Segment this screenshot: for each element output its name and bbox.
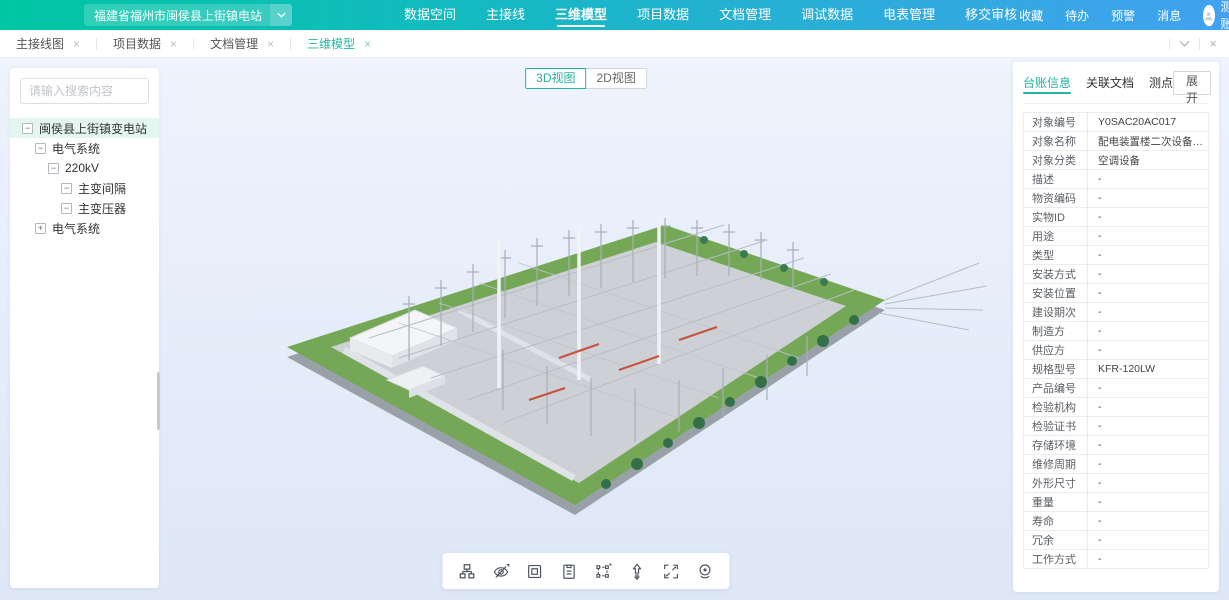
tab-label: 项目数据 bbox=[113, 35, 161, 52]
view-mode-toggle: 3D视图2D视图 bbox=[525, 68, 647, 89]
row-label: 冗余 bbox=[1024, 531, 1088, 549]
tab-2[interactable]: 文档管理× bbox=[194, 30, 290, 57]
model-tree-icon bbox=[458, 562, 477, 581]
app-header: 福建省福州市闽侯县上街镇电站 数据空间主接线三维模型项目数据文档管理调试数据电表… bbox=[0, 0, 1229, 30]
fullscreen-button[interactable] bbox=[659, 559, 684, 584]
row-value: - bbox=[1088, 306, 1208, 318]
row-label: 规格型号 bbox=[1024, 360, 1088, 378]
tab-label: 主接线图 bbox=[16, 35, 64, 52]
tab-list: 主接线图×项目数据×文档管理×三维模型× bbox=[0, 30, 387, 57]
content-area: −闽侯县上街镇变电站−电气系统−220kV−主变间隔−主变压器+电气系统 3D视… bbox=[0, 58, 1229, 600]
table-row: 对象名称配电装置楼二次设备室柜式空... bbox=[1024, 132, 1208, 151]
table-row: 寿命- bbox=[1024, 512, 1208, 531]
view-toggle-2d[interactable]: 2D视图 bbox=[586, 68, 647, 89]
ledger-table: 对象编号Y0SAC20AC017对象名称配电装置楼二次设备室柜式空...对象分类… bbox=[1023, 112, 1209, 569]
quick-link-3[interactable]: 消息 bbox=[1157, 7, 1181, 24]
row-label: 安装位置 bbox=[1024, 284, 1088, 302]
detail-tab-1[interactable]: 关联文档 bbox=[1086, 62, 1134, 103]
clipboard-icon bbox=[560, 562, 579, 581]
table-row: 描述- bbox=[1024, 170, 1208, 189]
row-label: 安装方式 bbox=[1024, 265, 1088, 283]
tree-node-2[interactable]: −220kV bbox=[10, 158, 159, 178]
table-row: 产品编号- bbox=[1024, 379, 1208, 398]
tab-1[interactable]: 项目数据× bbox=[97, 30, 193, 57]
row-value: - bbox=[1088, 515, 1208, 527]
row-value: - bbox=[1088, 230, 1208, 242]
row-label: 描述 bbox=[1024, 170, 1088, 188]
close-icon[interactable]: × bbox=[170, 37, 177, 51]
station-selector-label: 福建省福州市闽侯县上街镇电站 bbox=[94, 7, 262, 24]
table-row: 建设期次- bbox=[1024, 303, 1208, 322]
quick-link-0[interactable]: 收藏 bbox=[1019, 7, 1043, 24]
viewpoint-button[interactable] bbox=[693, 559, 718, 584]
table-row: 重量- bbox=[1024, 493, 1208, 512]
row-value: KFR-120LW bbox=[1088, 363, 1208, 375]
expand-icon[interactable]: + bbox=[35, 223, 46, 234]
viewpoint-icon bbox=[696, 562, 715, 581]
nav-item-6[interactable]: 电表管理 bbox=[881, 0, 937, 30]
close-icon[interactable]: × bbox=[364, 37, 371, 51]
avatar bbox=[1203, 5, 1214, 26]
row-value: - bbox=[1088, 382, 1208, 394]
table-row: 用途- bbox=[1024, 227, 1208, 246]
row-label: 制造方 bbox=[1024, 322, 1088, 340]
row-label: 寿命 bbox=[1024, 512, 1088, 530]
divider bbox=[1169, 38, 1170, 50]
table-row: 安装位置- bbox=[1024, 284, 1208, 303]
frame-button[interactable] bbox=[523, 559, 548, 584]
header-right: 收藏待办预警消息 测试账号 bbox=[1019, 0, 1229, 32]
tab-bar-controls: × bbox=[1169, 36, 1217, 51]
row-value: - bbox=[1088, 211, 1208, 223]
table-row: 安装方式- bbox=[1024, 265, 1208, 284]
divider bbox=[1199, 38, 1200, 50]
tree-node-5[interactable]: +电气系统 bbox=[10, 218, 159, 238]
row-label: 维修周期 bbox=[1024, 455, 1088, 473]
tree-node-1[interactable]: −电气系统 bbox=[10, 138, 159, 158]
row-value: - bbox=[1088, 401, 1208, 413]
table-row: 冗余- bbox=[1024, 531, 1208, 550]
row-value: - bbox=[1088, 496, 1208, 508]
row-label: 物资编码 bbox=[1024, 189, 1088, 207]
row-value: - bbox=[1088, 287, 1208, 299]
row-label: 对象名称 bbox=[1024, 132, 1088, 150]
tree-node-0[interactable]: −闽侯县上街镇变电站 bbox=[10, 118, 159, 138]
row-value: 空调设备 bbox=[1088, 153, 1208, 168]
expand-button[interactable]: 展开 bbox=[1173, 71, 1211, 95]
row-label: 供应方 bbox=[1024, 341, 1088, 359]
nav-item-7[interactable]: 移交审核 bbox=[963, 0, 1019, 30]
row-value: - bbox=[1088, 325, 1208, 337]
table-row: 外形尺寸- bbox=[1024, 474, 1208, 493]
row-label: 检验机构 bbox=[1024, 398, 1088, 416]
detail-tabs-row: 台账信息关联文档测点 展开 bbox=[1023, 62, 1209, 104]
row-label: 产品编号 bbox=[1024, 379, 1088, 397]
tree-node-label: 闽侯县上街镇变电站 bbox=[39, 120, 147, 137]
detail-tab-2[interactable]: 测点 bbox=[1149, 62, 1173, 103]
viewer-toolbar bbox=[443, 553, 730, 589]
row-label: 工作方式 bbox=[1024, 550, 1088, 568]
row-label: 用途 bbox=[1024, 227, 1088, 245]
view-toggle-3d[interactable]: 3D视图 bbox=[525, 68, 586, 89]
row-label: 检验证书 bbox=[1024, 417, 1088, 435]
station-selector[interactable]: 福建省福州市闽侯县上街镇电站 bbox=[84, 4, 292, 26]
table-row: 规格型号KFR-120LW bbox=[1024, 360, 1208, 379]
detail-panel: 台账信息关联文档测点 展开 对象编号Y0SAC20AC017对象名称配电装置楼二… bbox=[1013, 62, 1219, 592]
table-row: 实物ID- bbox=[1024, 208, 1208, 227]
tab-0[interactable]: 主接线图× bbox=[0, 30, 96, 57]
tab-3[interactable]: 三维模型× bbox=[291, 30, 387, 57]
table-row: 存储环境- bbox=[1024, 436, 1208, 455]
table-row: 供应方- bbox=[1024, 341, 1208, 360]
row-value: - bbox=[1088, 344, 1208, 356]
chevron-down-icon bbox=[270, 4, 292, 26]
row-label: 对象编号 bbox=[1024, 113, 1088, 131]
nav-item-4[interactable]: 文档管理 bbox=[717, 0, 773, 30]
tree-node-label: 主变间隔 bbox=[78, 180, 126, 197]
nav-item-0[interactable]: 数据空间 bbox=[402, 0, 458, 30]
tree-node-label: 主变压器 bbox=[78, 200, 126, 217]
nav-item-3[interactable]: 项目数据 bbox=[635, 0, 691, 30]
account-menu[interactable]: 测试账号 bbox=[1203, 0, 1229, 32]
table-row: 工作方式- bbox=[1024, 550, 1208, 569]
quick-link-2[interactable]: 预警 bbox=[1111, 7, 1135, 24]
nav-item-5[interactable]: 调试数据 bbox=[799, 0, 855, 30]
frame-icon bbox=[526, 562, 545, 581]
row-label: 外形尺寸 bbox=[1024, 474, 1088, 492]
tree-node-3[interactable]: −主变间隔 bbox=[10, 178, 159, 198]
hide-icon bbox=[492, 562, 511, 581]
collapse-tabs-icon[interactable] bbox=[1179, 40, 1190, 47]
box-select-icon bbox=[594, 562, 613, 581]
row-label: 类型 bbox=[1024, 246, 1088, 264]
tab-label: 文档管理 bbox=[210, 35, 258, 52]
scene-container bbox=[159, 58, 1013, 600]
box-select-button[interactable] bbox=[591, 559, 616, 584]
main-nav: 数据空间主接线三维模型项目数据文档管理调试数据电表管理移交审核 bbox=[402, 0, 1019, 30]
collapse-icon[interactable]: − bbox=[48, 163, 59, 174]
table-row: 类型- bbox=[1024, 246, 1208, 265]
close-all-tabs-icon[interactable]: × bbox=[1209, 36, 1217, 51]
tree-node-4[interactable]: −主变压器 bbox=[10, 198, 159, 218]
detail-tab-0[interactable]: 台账信息 bbox=[1023, 62, 1071, 103]
detail-tabs: 台账信息关联文档测点 bbox=[1023, 62, 1173, 103]
row-value: - bbox=[1088, 439, 1208, 451]
clipboard-button[interactable] bbox=[557, 559, 582, 584]
collapse-icon[interactable]: − bbox=[35, 143, 46, 154]
elevation-button[interactable] bbox=[625, 559, 650, 584]
row-label: 建设期次 bbox=[1024, 303, 1088, 321]
table-row: 维修周期- bbox=[1024, 455, 1208, 474]
hide-button[interactable] bbox=[489, 559, 514, 584]
model-viewport[interactable]: 3D视图2D视图 bbox=[159, 58, 1013, 600]
table-row: 对象编号Y0SAC20AC017 bbox=[1024, 113, 1208, 132]
model-exit-lines bbox=[879, 263, 987, 330]
close-icon[interactable]: × bbox=[267, 37, 274, 51]
elevation-icon bbox=[628, 562, 647, 581]
table-row: 检验证书- bbox=[1024, 417, 1208, 436]
search-wrap bbox=[10, 68, 159, 114]
row-value: - bbox=[1088, 268, 1208, 280]
row-label: 实物ID bbox=[1024, 208, 1088, 226]
tab-bar: 主接线图×项目数据×文档管理×三维模型× × bbox=[0, 30, 1229, 58]
nav-item-1[interactable]: 主接线 bbox=[484, 0, 527, 30]
tab-label: 三维模型 bbox=[307, 35, 355, 52]
row-value: - bbox=[1088, 249, 1208, 261]
substation-3d-model[interactable] bbox=[159, 58, 1013, 600]
model-tree-button[interactable] bbox=[455, 559, 480, 584]
nav-item-2[interactable]: 三维模型 bbox=[553, 0, 609, 30]
row-label: 对象分类 bbox=[1024, 151, 1088, 169]
row-value: Y0SAC20AC017 bbox=[1088, 116, 1208, 128]
row-value: 配电装置楼二次设备室柜式空... bbox=[1088, 134, 1208, 149]
tree-node-label: 电气系统 bbox=[52, 220, 100, 237]
model-tree-sidebar: −闽侯县上街镇变电站−电气系统−220kV−主变间隔−主变压器+电气系统 bbox=[10, 68, 159, 588]
fullscreen-icon bbox=[662, 562, 681, 581]
row-value: - bbox=[1088, 173, 1208, 185]
row-value: - bbox=[1088, 192, 1208, 204]
table-row: 对象分类空调设备 bbox=[1024, 151, 1208, 170]
row-value: - bbox=[1088, 553, 1208, 565]
tree-node-label: 220kV bbox=[65, 161, 99, 175]
account-name: 测试账号 bbox=[1221, 0, 1229, 32]
quick-link-1[interactable]: 待办 bbox=[1065, 7, 1089, 24]
collapse-icon[interactable]: − bbox=[61, 203, 72, 214]
table-row: 检验机构- bbox=[1024, 398, 1208, 417]
row-label: 重量 bbox=[1024, 493, 1088, 511]
close-icon[interactable]: × bbox=[73, 37, 80, 51]
station-tree: −闽侯县上街镇变电站−电气系统−220kV−主变间隔−主变压器+电气系统 bbox=[10, 118, 159, 238]
collapse-icon[interactable]: − bbox=[61, 183, 72, 194]
row-label: 存储环境 bbox=[1024, 436, 1088, 454]
table-row: 制造方- bbox=[1024, 322, 1208, 341]
row-value: - bbox=[1088, 534, 1208, 546]
row-value: - bbox=[1088, 420, 1208, 432]
collapse-icon[interactable]: − bbox=[22, 123, 33, 134]
table-row: 物资编码- bbox=[1024, 189, 1208, 208]
tree-node-label: 电气系统 bbox=[52, 140, 100, 157]
search-input[interactable] bbox=[20, 78, 149, 104]
row-value: - bbox=[1088, 477, 1208, 489]
quick-links: 收藏待办预警消息 bbox=[1019, 7, 1181, 24]
row-value: - bbox=[1088, 458, 1208, 470]
